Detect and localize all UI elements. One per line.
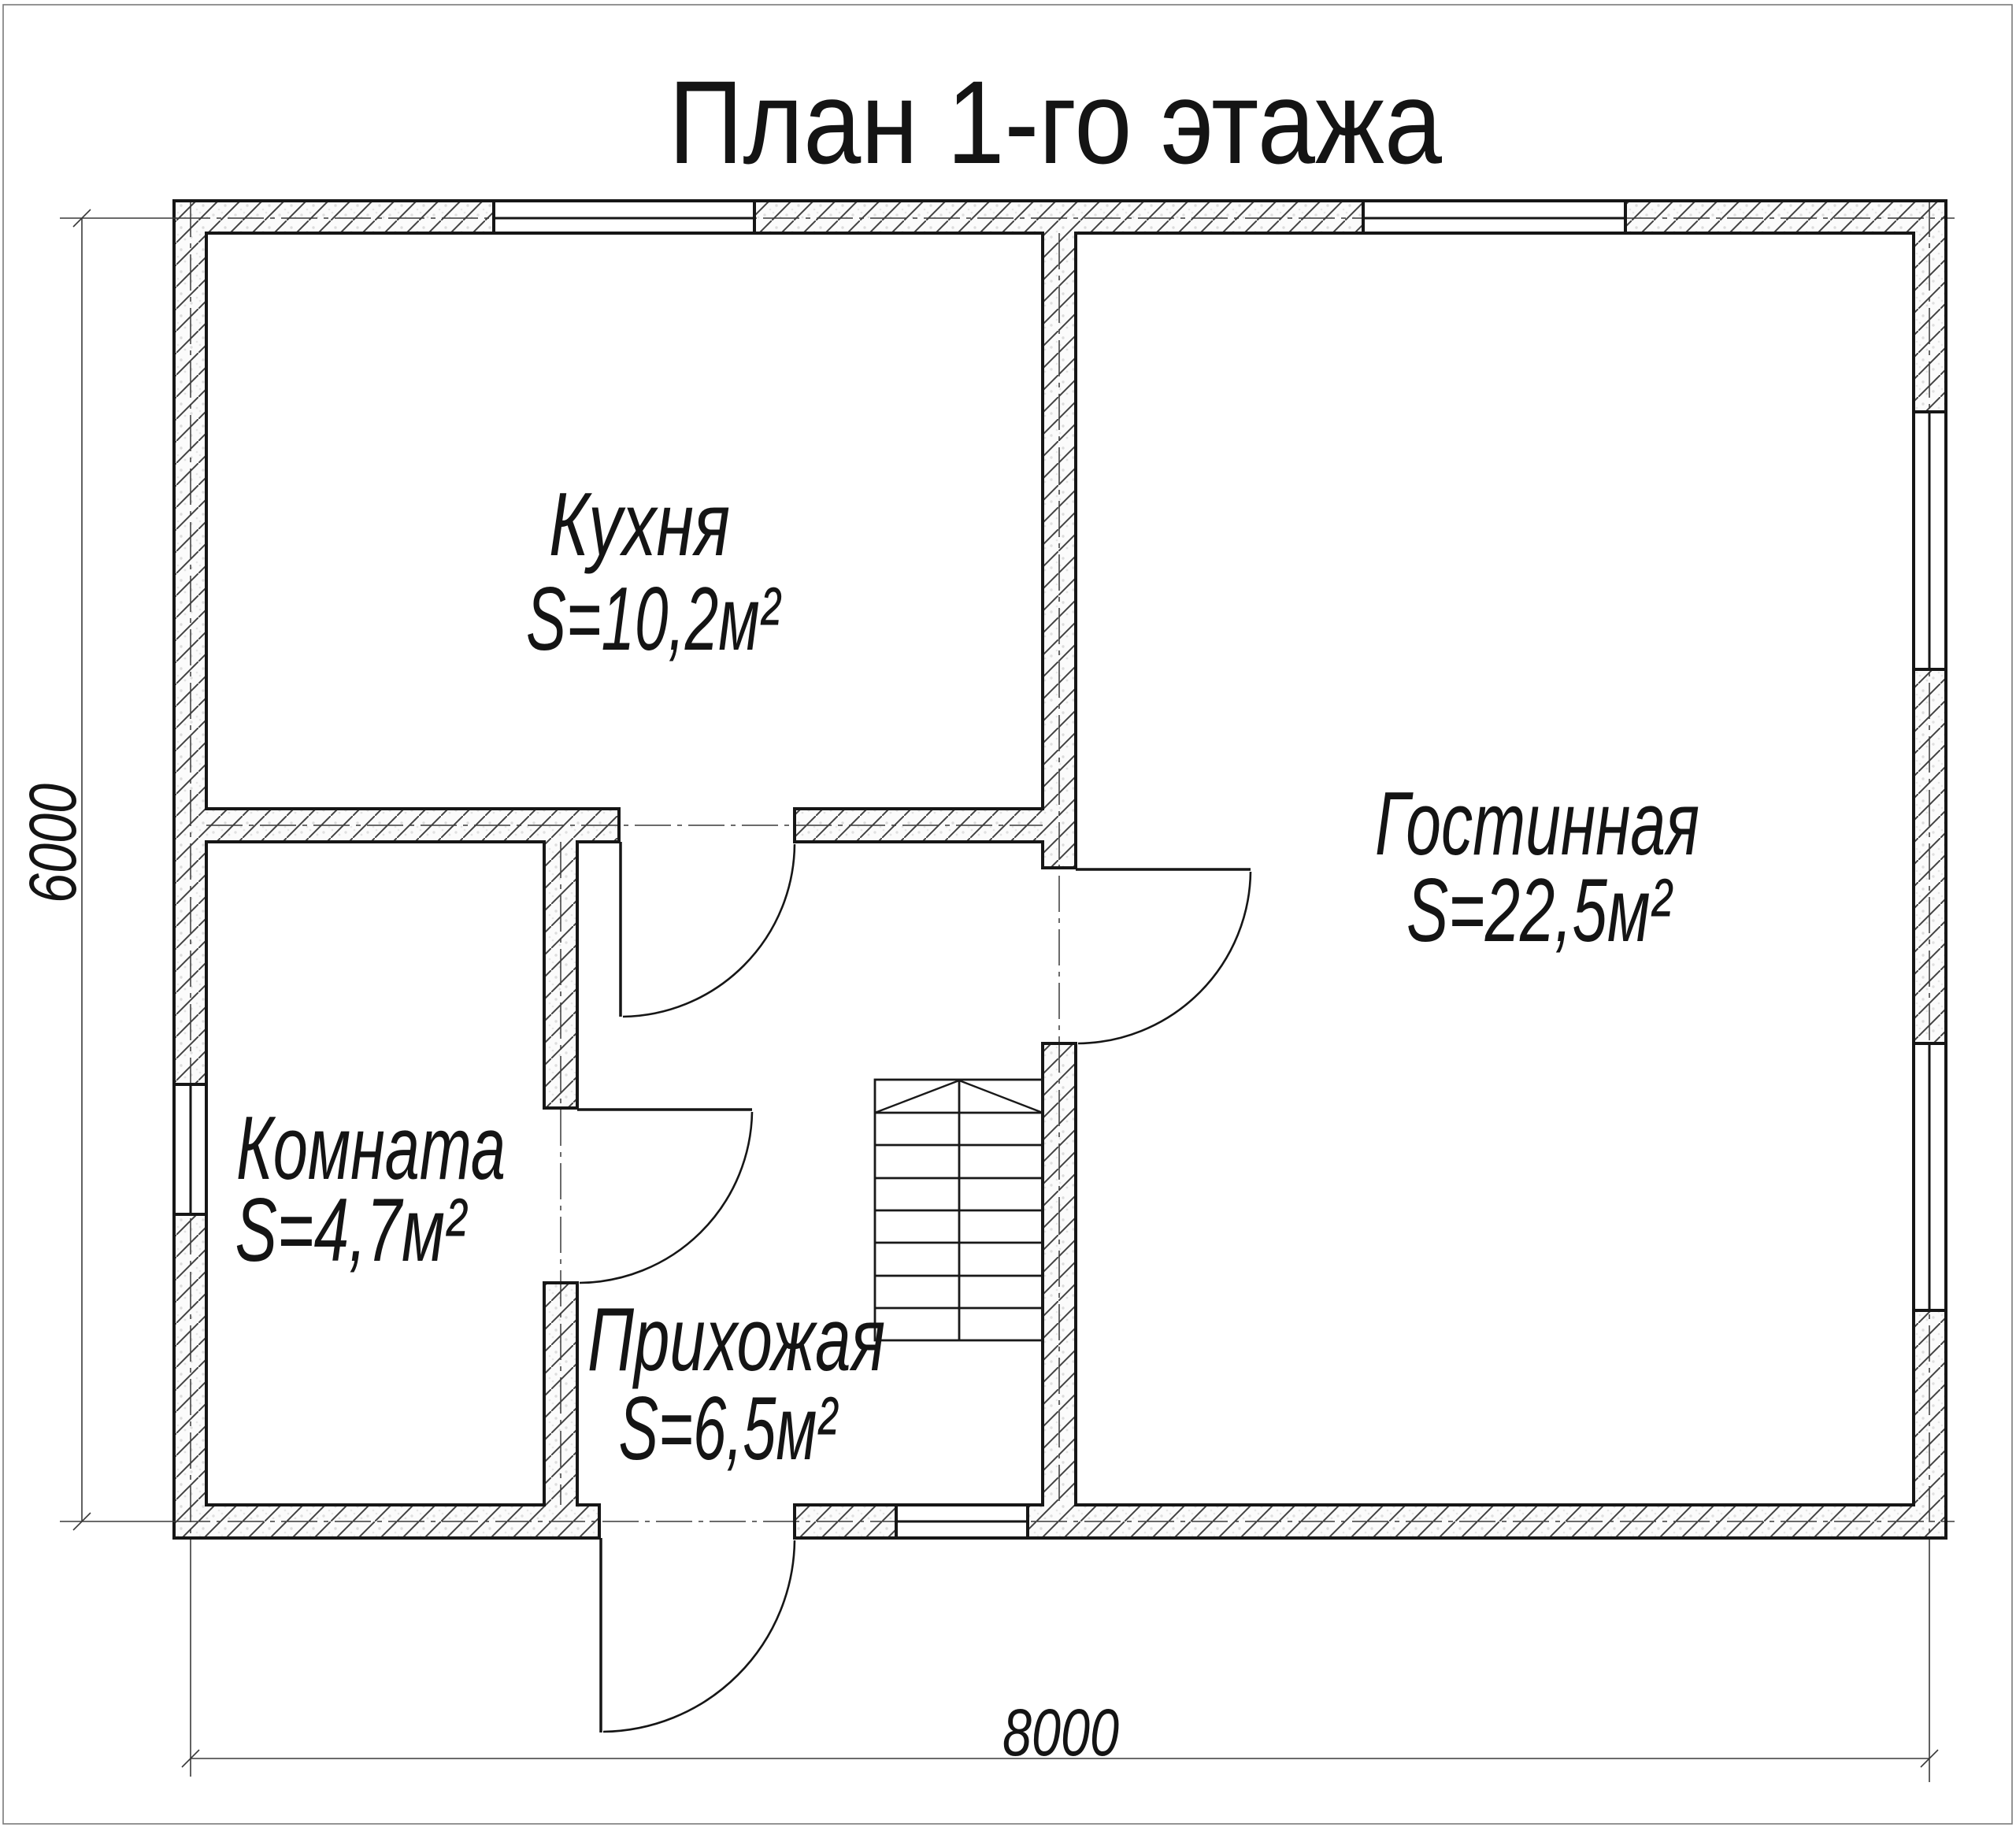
svg-text:Прихожая: Прихожая <box>587 1290 885 1390</box>
svg-text:S=22,5м²: S=22,5м² <box>1406 861 1673 961</box>
svg-text:Кухня: Кухня <box>549 475 730 575</box>
svg-text:8000: 8000 <box>1002 1695 1119 1770</box>
svg-text:Гостинная: Гостинная <box>1375 774 1699 874</box>
svg-text:S=10,2м²: S=10,2м² <box>526 569 782 669</box>
svg-text:План 1-го этажа: План 1-го этажа <box>669 56 1443 188</box>
svg-text:S=6,5м²: S=6,5м² <box>619 1379 839 1479</box>
svg-text:6000: 6000 <box>16 784 90 903</box>
svg-text:S=4,7м²: S=4,7м² <box>235 1180 469 1280</box>
